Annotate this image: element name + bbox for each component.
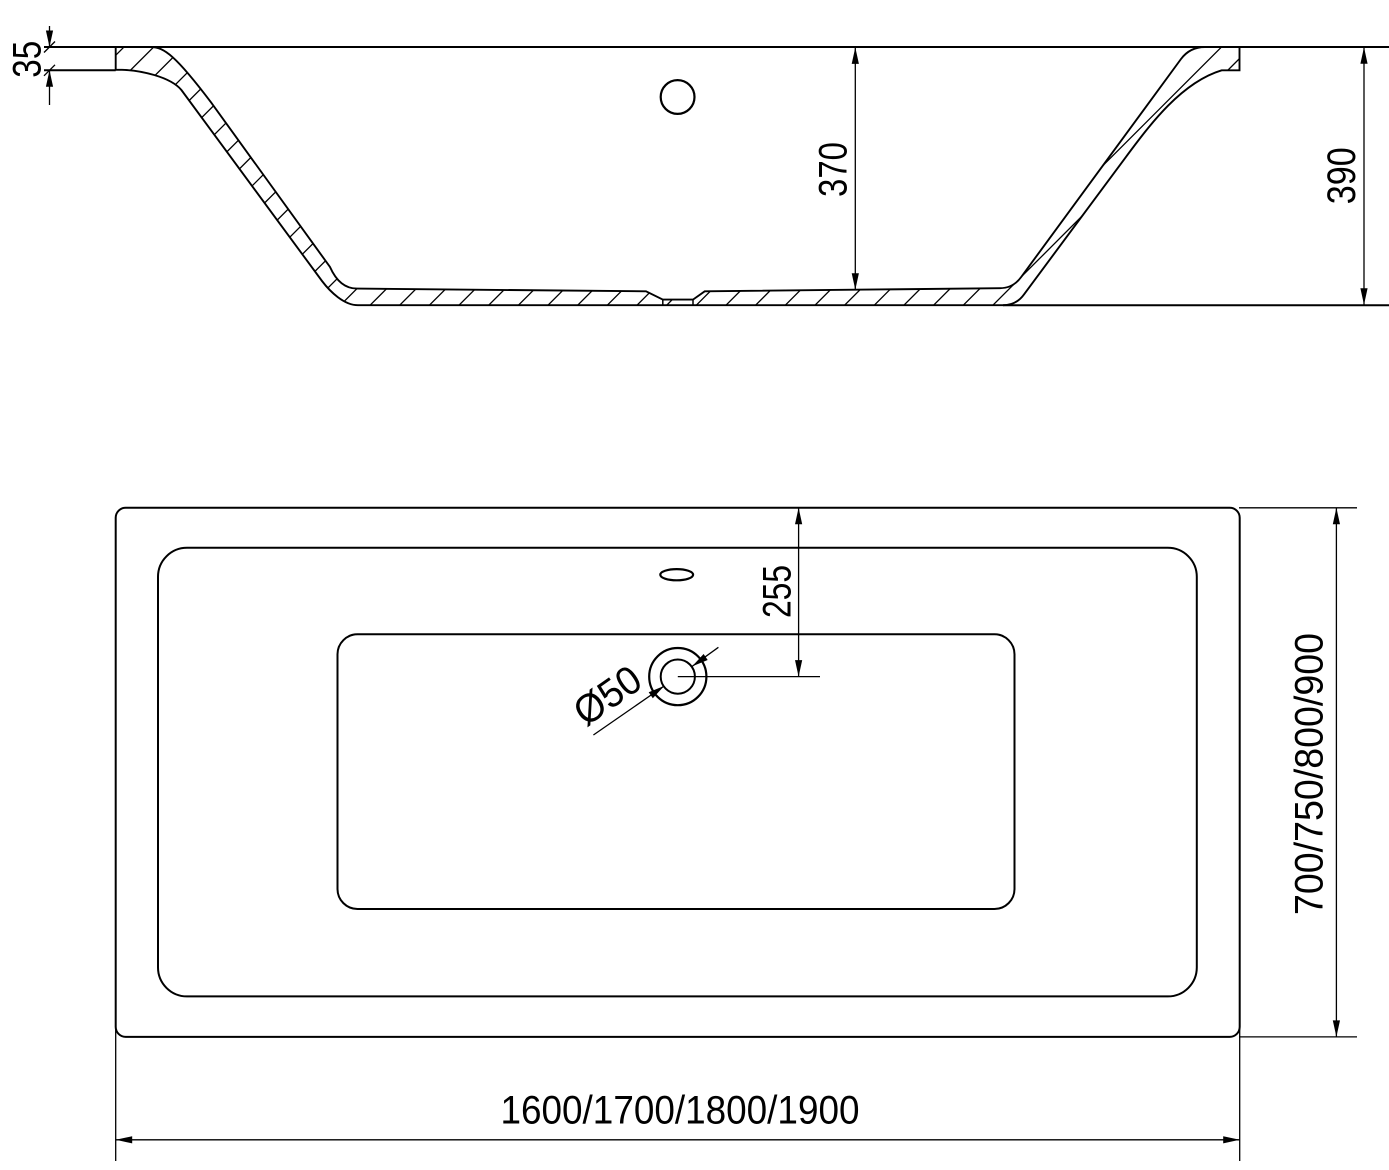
svg-text:390: 390 [1320, 147, 1364, 204]
svg-text:255: 255 [756, 565, 800, 618]
svg-text:35: 35 [6, 41, 50, 78]
svg-text:700/750/800/900: 700/750/800/900 [1288, 633, 1332, 915]
svg-text:370: 370 [812, 142, 856, 197]
svg-text:1600/1700/1800/1900: 1600/1700/1800/1900 [501, 1089, 860, 1133]
